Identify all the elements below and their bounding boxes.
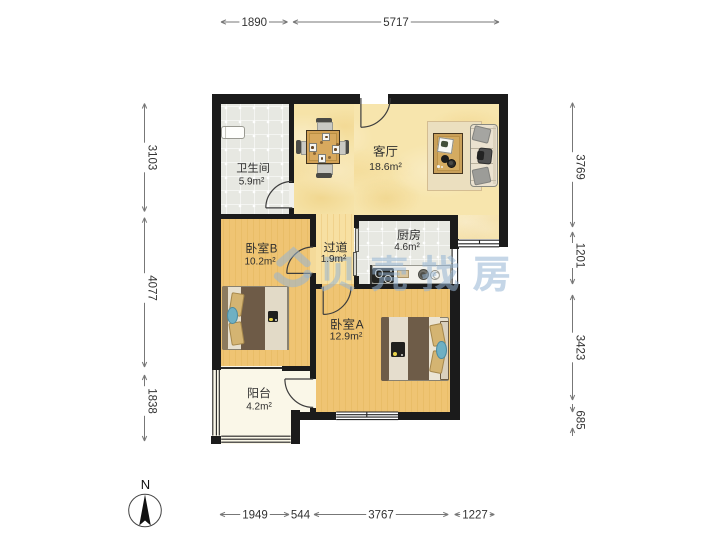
- svg-text:4.2m²: 4.2m²: [246, 401, 272, 412]
- svg-text:N: N: [141, 477, 150, 492]
- svg-text:3767: 3767: [368, 510, 394, 522]
- svg-text:4077: 4077: [146, 275, 158, 301]
- svg-text:10.2m²: 10.2m²: [244, 257, 276, 268]
- svg-text:A: A: [356, 318, 364, 332]
- svg-text:1949: 1949: [242, 510, 268, 522]
- svg-text:1.9m²: 1.9m²: [321, 254, 347, 265]
- svg-text:1838: 1838: [146, 388, 158, 414]
- svg-text:12.9m²: 12.9m²: [330, 331, 363, 343]
- svg-text:544: 544: [291, 510, 311, 522]
- svg-text:1201: 1201: [574, 243, 586, 269]
- svg-text:4.6m²: 4.6m²: [394, 242, 420, 253]
- svg-text:3423: 3423: [574, 335, 586, 361]
- svg-text:5.9m²: 5.9m²: [239, 177, 265, 188]
- svg-text:3103: 3103: [146, 145, 158, 171]
- svg-text:3769: 3769: [574, 154, 586, 180]
- svg-text:1227: 1227: [462, 510, 488, 522]
- svg-text:18.6m²: 18.6m²: [369, 161, 402, 173]
- svg-text:1890: 1890: [241, 17, 267, 29]
- svg-text:685: 685: [574, 410, 586, 429]
- svg-text:B: B: [270, 243, 278, 255]
- svg-text:5717: 5717: [383, 17, 409, 29]
